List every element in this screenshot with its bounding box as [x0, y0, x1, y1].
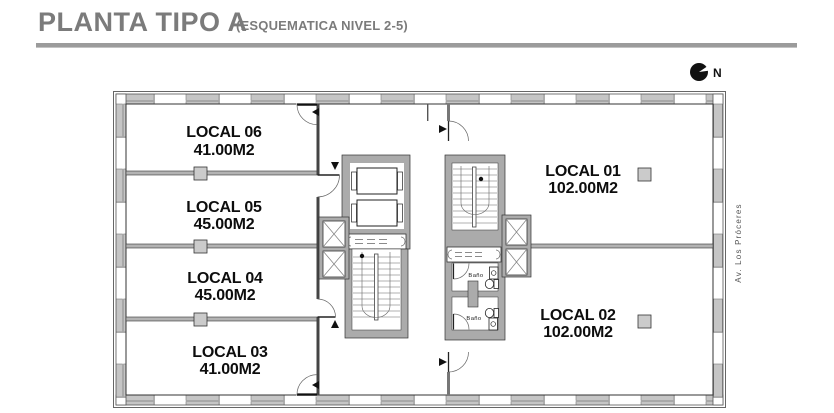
- local-06-area: 41.00M2: [194, 142, 255, 159]
- elevator-core: [342, 155, 410, 249]
- column: [194, 313, 207, 326]
- toilet-icon: [485, 279, 498, 288]
- column: [638, 315, 651, 328]
- stairwell-left: [345, 249, 408, 338]
- bath-2-label: Baño: [466, 316, 481, 322]
- bath-1-label: Baño: [468, 273, 483, 279]
- stair-bath-core: [445, 155, 505, 340]
- sink-icon: [489, 318, 498, 330]
- local-04-area: 45.00M2: [195, 287, 256, 304]
- page-subtitle: (ESQUEMATICA NIVEL 2-5): [236, 18, 408, 33]
- duct-shafts-left: [319, 217, 349, 279]
- local-04-name: LOCAL 04: [187, 270, 263, 287]
- local-02-area: 102.00M2: [543, 324, 613, 341]
- street-name: Av. Los Próceres: [734, 203, 743, 282]
- local-03-name: LOCAL 03: [192, 344, 268, 361]
- column: [194, 167, 207, 180]
- local01-02-partition-wall: [529, 244, 713, 248]
- floor-plan: LOCAL 06 41.00M2 LOCAL 05 45.00M2 LOCAL …: [114, 92, 726, 408]
- local-05-area: 45.00M2: [194, 216, 255, 233]
- elevator-cab-1: [357, 168, 397, 194]
- local-05-name: LOCAL 05: [186, 199, 262, 216]
- north-label: N: [713, 66, 722, 80]
- local-01-area: 102.00M2: [548, 180, 618, 197]
- local-01-name: LOCAL 01: [545, 163, 621, 180]
- floor-plan-sheet: PLANTA TIPO A (ESQUEMATICA NIVEL 2-5) N …: [0, 0, 834, 413]
- duct-shafts-right: [502, 215, 531, 277]
- floor-plan-canvas: PLANTA TIPO A (ESQUEMATICA NIVEL 2-5) N …: [0, 0, 834, 413]
- louver-strip-left: [346, 234, 406, 249]
- column: [194, 240, 207, 253]
- header-divider: [36, 43, 797, 48]
- page-title: PLANTA TIPO A: [38, 7, 248, 37]
- sink-icon: [490, 267, 499, 279]
- column: [638, 168, 651, 181]
- north-indicator-icon: N: [690, 63, 722, 81]
- toilet-icon: [485, 308, 498, 317]
- louver-strip-right: [447, 247, 501, 262]
- local-06-name: LOCAL 06: [186, 124, 262, 141]
- local-02-name: LOCAL 02: [540, 307, 616, 324]
- local-03-area: 41.00M2: [200, 361, 261, 378]
- elevator-cab-2: [357, 200, 397, 226]
